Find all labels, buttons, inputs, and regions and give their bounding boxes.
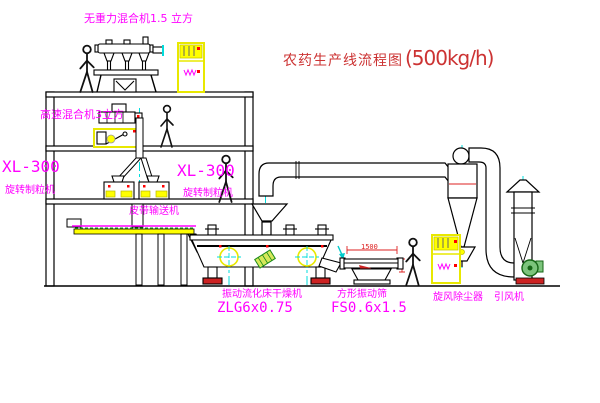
granulator-left	[104, 176, 134, 199]
label-granulator-left-name: 旋转制粒机	[5, 186, 55, 197]
label-granulator-left-model: XL-300	[2, 159, 60, 176]
pulley	[107, 135, 115, 143]
label-high-speed-mixer: 高速混合机3立方	[40, 109, 124, 121]
label-screen-name: 方形振动筛	[337, 290, 387, 301]
title-capacity: (500kg/h)	[405, 46, 493, 70]
label-screen-model: FS0.6x1.5	[331, 301, 407, 316]
dryer-hood-funnel	[252, 204, 287, 221]
label-granulator-mid-name: 旋转制粒机	[183, 189, 233, 200]
control-cabinet-ground	[432, 235, 460, 283]
screen-width-dimension: 1500	[361, 243, 378, 251]
indicator-light	[454, 240, 457, 243]
zero-gravity-mixer	[94, 37, 163, 92]
label-belt-conveyor: 皮带输送机	[129, 207, 179, 218]
label-dryer-model: ZLG6x0.75	[217, 301, 293, 316]
pesticide-production-line-diagram: 农药生产线流程图 (500kg/h) 无重力混合机1.5 立方 高速混合机3立方…	[0, 0, 600, 403]
worker-floor2	[161, 106, 173, 147]
indicator-light	[197, 70, 200, 73]
worker-roof	[80, 46, 93, 92]
granulator-right	[139, 176, 169, 199]
label-top-mixer: 无重力混合机1.5 立方	[84, 13, 193, 25]
indicator-light	[197, 47, 200, 50]
label-granulator-mid-model: XL-300	[177, 163, 235, 180]
label-fan: 引风机	[494, 293, 524, 304]
worker-ground	[406, 239, 419, 285]
label-cyclone: 旋风除尘器	[433, 293, 483, 304]
belt-conveyor	[67, 219, 204, 285]
label-dryer-name: 振动流化床干燥机	[222, 290, 302, 301]
exhaust-duct	[252, 161, 449, 235]
vibrating-screen	[340, 246, 405, 284]
diagram-title: 农药生产线流程图 (500kg/h)	[283, 46, 493, 70]
control-cabinet-roof	[178, 43, 204, 92]
indicator-light	[454, 264, 457, 267]
title-text: 农药生产线流程图	[283, 50, 403, 70]
